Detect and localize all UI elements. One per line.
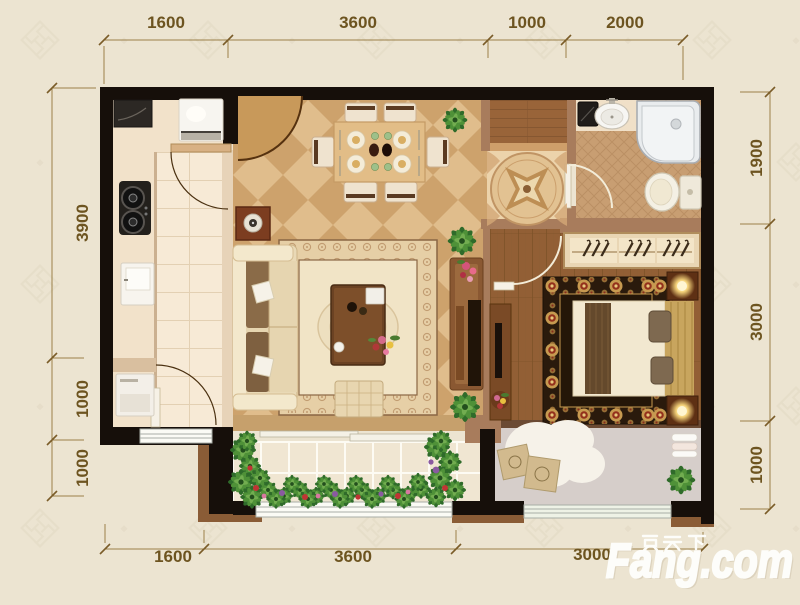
svg-text:3000: 3000 [747,303,766,341]
svg-text:3600: 3600 [334,547,372,566]
svg-text:1000: 1000 [73,380,92,418]
svg-text:3600: 3600 [339,13,377,32]
svg-text:1000: 1000 [747,446,766,484]
svg-text:Fang.com: Fang.com [606,535,793,588]
svg-text:1000: 1000 [73,449,92,487]
svg-text:1600: 1600 [154,547,192,566]
svg-text:1900: 1900 [747,139,766,177]
svg-text:2000: 2000 [606,13,644,32]
svg-text:1000: 1000 [508,13,546,32]
svg-text:1600: 1600 [147,13,185,32]
svg-text:3900: 3900 [73,204,92,242]
